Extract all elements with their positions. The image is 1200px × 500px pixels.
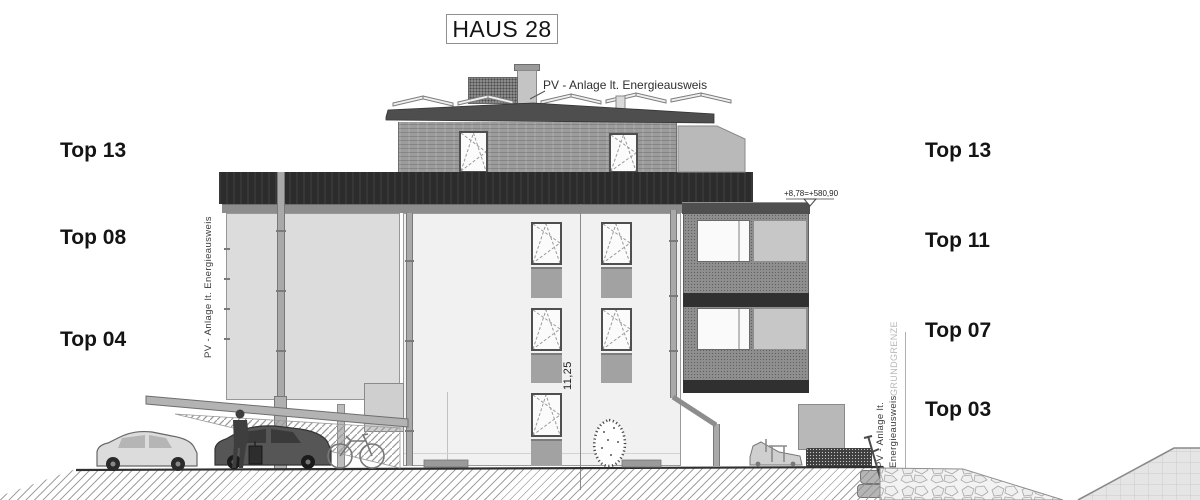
shrub: [594, 420, 625, 466]
drawing-overlay: [0, 0, 1200, 500]
ground-line: [76, 467, 883, 470]
stone-paving: [880, 468, 1063, 500]
plinth-block: [424, 460, 468, 467]
pv-leader-line: [530, 91, 545, 99]
car: [97, 432, 197, 471]
level-marker: [786, 199, 834, 206]
downpipe-elbow: [673, 397, 716, 425]
terrain-slope: [1078, 448, 1200, 500]
roof-slab: [386, 103, 714, 123]
elevation-drawing: HAUS 28 Top 13 Top 08 Top 04 Top 13 Top …: [0, 0, 1200, 500]
car: [215, 426, 331, 469]
rear-building-massing: [678, 126, 745, 172]
plinth-block: [622, 460, 661, 467]
